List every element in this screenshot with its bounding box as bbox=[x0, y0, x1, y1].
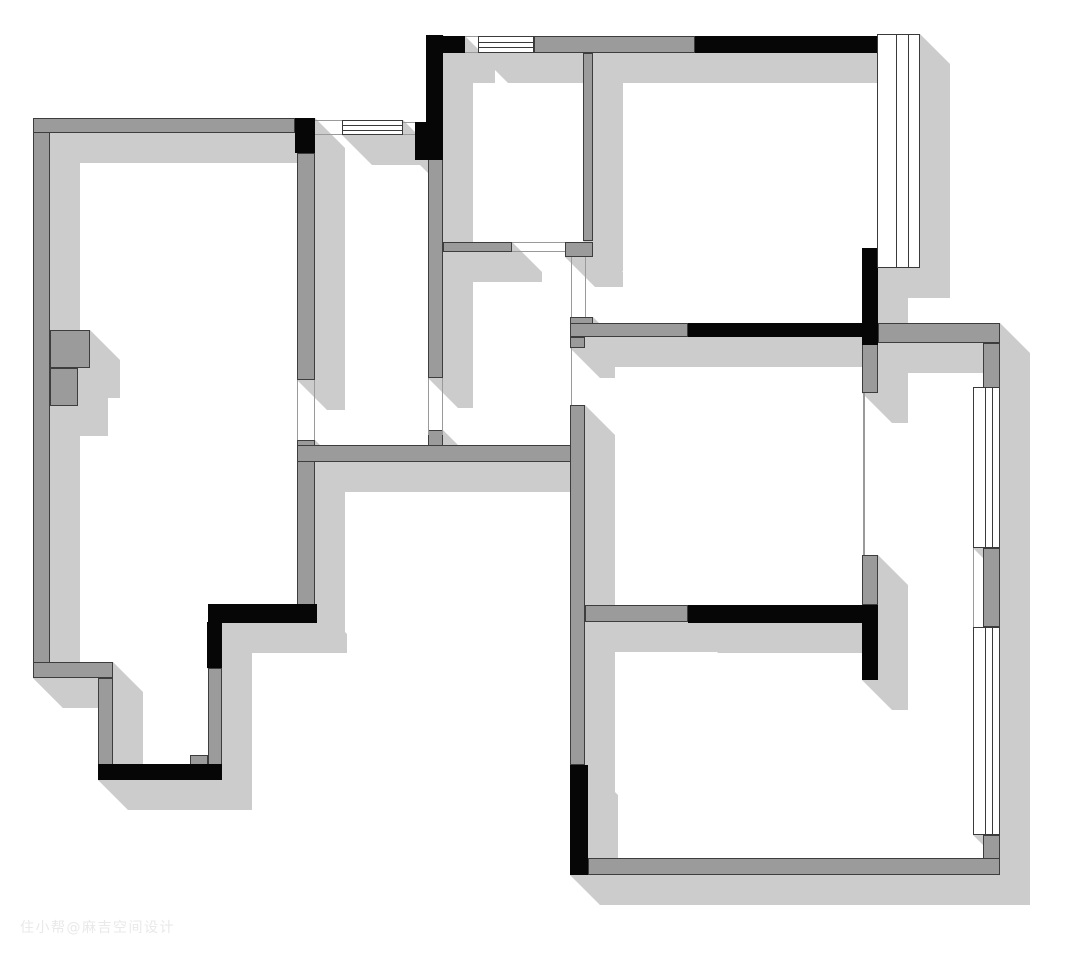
wall-segment bbox=[878, 323, 1000, 343]
bearing-wall-segment bbox=[426, 35, 443, 160]
wall-segment bbox=[570, 323, 688, 337]
bearing-wall-segment bbox=[208, 604, 317, 623]
wall-segment bbox=[208, 668, 222, 765]
wall-segment bbox=[297, 445, 583, 462]
window-glazing-line bbox=[992, 388, 993, 547]
door-opening-line bbox=[571, 257, 572, 317]
wall-segment bbox=[585, 605, 688, 622]
window-glazing-line bbox=[343, 130, 402, 131]
bearing-wall-segment bbox=[295, 118, 315, 153]
wall-segment bbox=[983, 548, 1000, 627]
window bbox=[877, 34, 920, 268]
door-opening-line bbox=[465, 52, 478, 53]
door-opening-line bbox=[428, 378, 429, 435]
wall-segment bbox=[983, 343, 1000, 388]
window-glazing-line bbox=[985, 388, 986, 547]
bearing-wall-segment bbox=[688, 323, 862, 337]
window-glazing-line bbox=[343, 125, 402, 126]
bearing-wall-segment bbox=[415, 122, 426, 160]
bearing-wall-segment bbox=[570, 765, 588, 875]
wall-segment bbox=[297, 440, 315, 605]
door-opening-line bbox=[297, 380, 298, 440]
wall-segment bbox=[33, 662, 113, 678]
wall-segment bbox=[570, 337, 585, 348]
bearing-wall-segment bbox=[862, 248, 878, 345]
door-opening-line bbox=[315, 134, 342, 135]
wall-segment bbox=[33, 118, 295, 133]
bearing-wall-segment bbox=[207, 622, 222, 668]
door-opening-line bbox=[863, 393, 865, 555]
wall-segment bbox=[428, 430, 443, 446]
door-opening-line bbox=[585, 257, 586, 317]
wall-segment bbox=[297, 153, 315, 380]
wall-segment bbox=[443, 242, 512, 252]
wall-segment bbox=[33, 118, 50, 678]
wall-segment bbox=[862, 555, 878, 605]
wall-segment bbox=[565, 242, 593, 257]
wall-segment bbox=[98, 678, 113, 766]
watermark: 住小帮@麻吉空间设计 bbox=[20, 917, 175, 937]
wall-segment bbox=[428, 158, 443, 378]
door-opening-line bbox=[465, 36, 478, 37]
window-glazing-line bbox=[992, 628, 993, 834]
window bbox=[973, 627, 1000, 835]
wall-segment bbox=[570, 405, 585, 765]
bearing-wall-segment bbox=[443, 36, 465, 53]
door-opening-line bbox=[442, 378, 443, 435]
door-opening-line bbox=[571, 348, 572, 405]
window-glazing-line bbox=[896, 35, 897, 267]
floor-plan-canvas: 住小帮@麻吉空间设计 bbox=[0, 0, 1080, 955]
bearing-wall-segment bbox=[695, 36, 877, 53]
wall-segment bbox=[50, 368, 78, 406]
wall-segment bbox=[534, 36, 695, 53]
window-glazing-line bbox=[479, 47, 533, 48]
bearing-wall-segment bbox=[688, 605, 878, 623]
door-opening-line bbox=[512, 251, 565, 252]
window bbox=[342, 120, 403, 135]
window bbox=[478, 36, 534, 53]
door-opening-line bbox=[314, 380, 315, 440]
window bbox=[973, 387, 1000, 548]
window-glazing-line bbox=[985, 628, 986, 834]
door-opening-line bbox=[973, 548, 974, 627]
bearing-wall-segment bbox=[98, 764, 222, 780]
door-opening-line bbox=[512, 242, 565, 243]
wall-segment bbox=[588, 858, 1000, 875]
window-glazing-line bbox=[908, 35, 909, 267]
window-glazing-line bbox=[479, 42, 533, 43]
door-opening-line bbox=[403, 122, 415, 123]
bearing-wall-segment bbox=[862, 605, 878, 680]
wall-segment bbox=[862, 337, 878, 393]
wall-segment bbox=[50, 330, 90, 368]
wall-segment bbox=[583, 53, 593, 241]
door-opening-line bbox=[403, 134, 415, 135]
door-opening-line bbox=[315, 120, 342, 121]
